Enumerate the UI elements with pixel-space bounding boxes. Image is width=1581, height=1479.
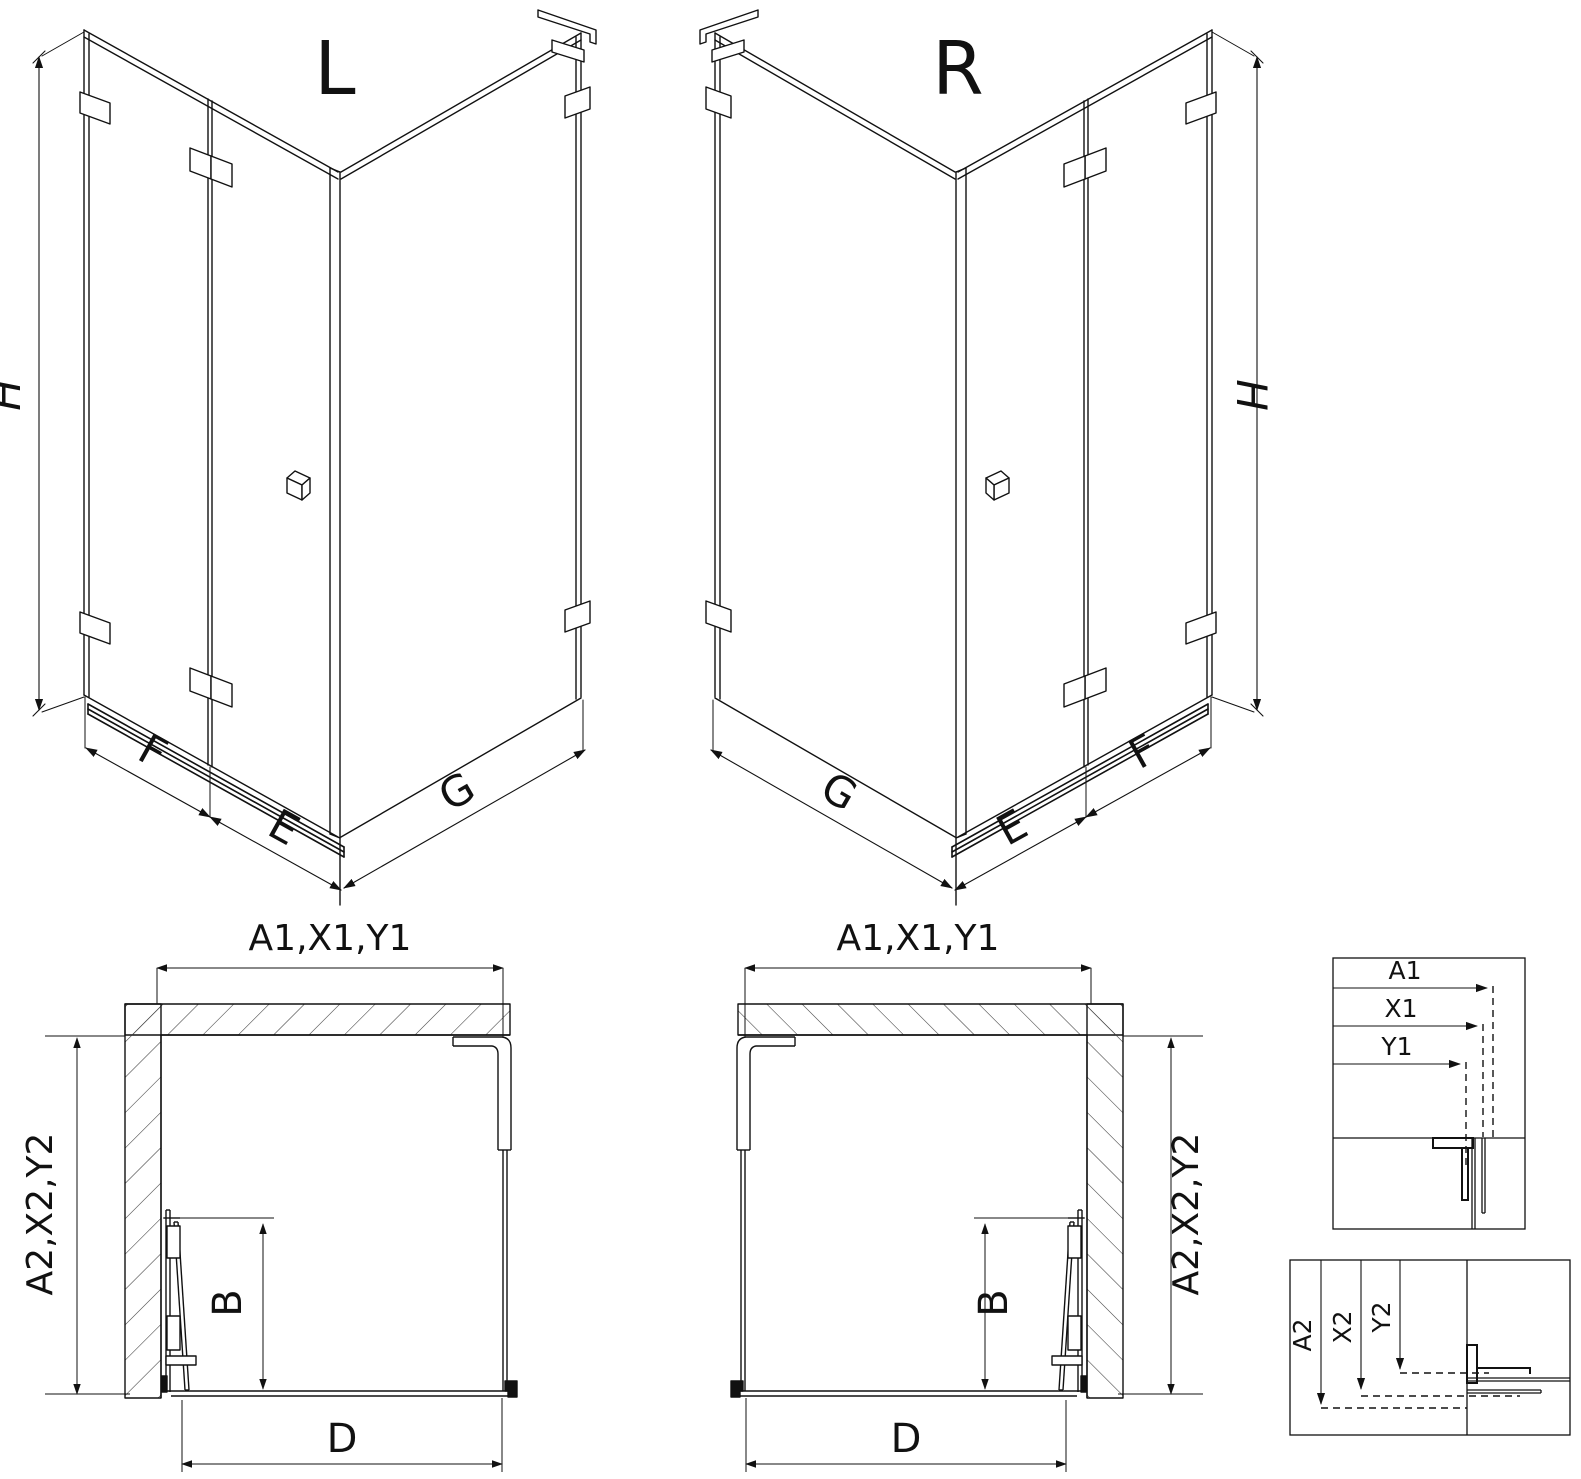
plan-door-open [162, 1210, 196, 1392]
detail-y2-label: Y2 [1367, 1301, 1396, 1333]
plan-left-door-label: B [205, 1289, 251, 1316]
plan-view-middle-geometry [731, 968, 1203, 1472]
plan-middle-entry-label: D [891, 1416, 922, 1462]
hinge-plates [80, 87, 590, 707]
shower-enclosure-diagram: L R H F E G H F E G [0, 0, 1581, 1479]
detail-a1-label: A1 [1388, 956, 1421, 985]
iso-right-title: R [932, 26, 983, 112]
dim-label-g-right: G [813, 762, 866, 821]
plan-left-entry-label: D [327, 1416, 358, 1462]
plan-middle-width-label: A1,X1,Y1 [837, 918, 1000, 959]
door-handle-knob [287, 471, 310, 500]
dim-label-g-left: G [430, 762, 483, 821]
detail-width-box [1333, 958, 1525, 1229]
dim-label-h-right: H [1227, 379, 1276, 411]
plan-left-depth-label: A2,X2,Y2 [20, 1133, 61, 1296]
iso-view-left-geometry [33, 10, 596, 905]
iso-extension-lines [42, 32, 583, 817]
technical-drawing-page: L R H F E G H F E G [0, 0, 1581, 1479]
plan-enclosure [161, 1035, 517, 1398]
detail-y1-label: Y1 [1380, 1032, 1412, 1061]
dim-label-h-left: H [0, 379, 30, 411]
detail-x1-label: X1 [1384, 994, 1417, 1023]
top-corner-bracket [538, 10, 596, 62]
iso-left-title: L [314, 26, 355, 112]
plan-view-left-geometry [45, 968, 517, 1472]
iso-view-right-geometry [700, 10, 1263, 905]
side-face-glass [341, 33, 581, 837]
wall-top [125, 1004, 510, 1035]
corner-post [330, 168, 340, 905]
iso-dimension-lines [33, 51, 585, 890]
plan-middle-door-label: B [971, 1289, 1017, 1316]
bottom-rail [88, 704, 344, 857]
wall-side [125, 1004, 161, 1398]
plan-left-width-label: A1,X1,Y1 [249, 918, 412, 959]
detail-height-box [1290, 1260, 1570, 1435]
detail-a2-label: A2 [1288, 1318, 1317, 1351]
detail-x2-label: X2 [1328, 1310, 1357, 1343]
plan-middle-depth-label: A2,X2,Y2 [1166, 1133, 1207, 1296]
door-face-glass [84, 30, 338, 837]
